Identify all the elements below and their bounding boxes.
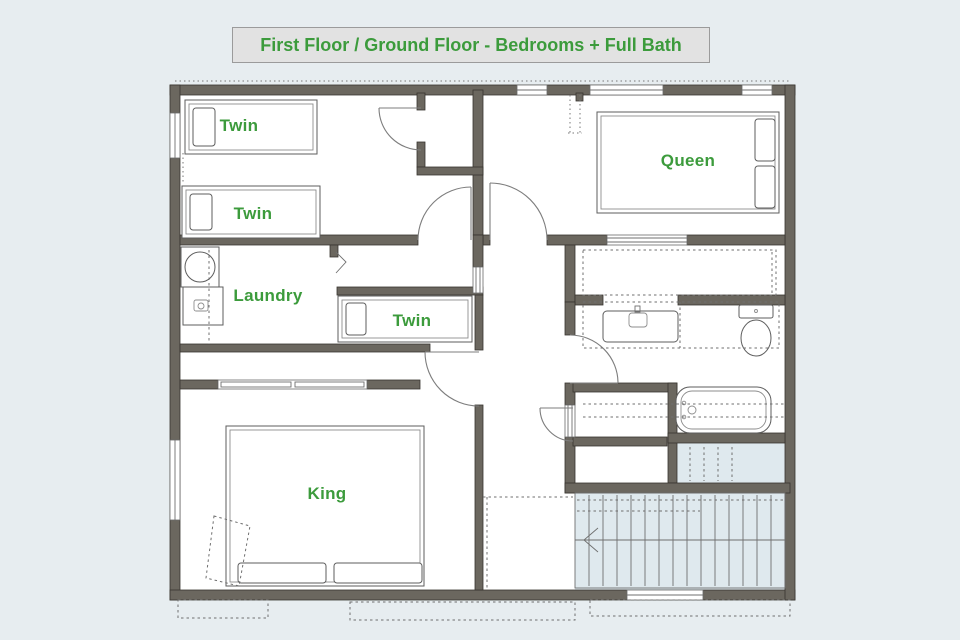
vanity-sink-icon <box>603 306 678 342</box>
window-queen-top <box>590 85 663 95</box>
opening-hall-wall <box>473 267 483 293</box>
label-laundry: Laundry <box>233 286 302 306</box>
floor-plan-canvas <box>0 0 960 640</box>
window-king-left <box>170 440 180 520</box>
opening-queen-wall <box>607 235 687 245</box>
closet-door-gap <box>565 405 575 437</box>
label-twin-c: Twin <box>393 311 432 331</box>
window-twin-left <box>170 113 180 158</box>
label-twin-a: Twin <box>220 116 259 136</box>
window-top-small <box>517 85 547 95</box>
laundry-cabinet-icon <box>183 287 223 325</box>
king-closet-sliding-doors <box>218 380 367 389</box>
label-queen: Queen <box>661 151 715 171</box>
window-bottom <box>627 590 703 600</box>
window-top-right <box>742 85 772 95</box>
washer-icon <box>181 247 219 287</box>
floor-plan-page: First Floor / Ground Floor - Bedrooms + … <box>0 0 960 640</box>
label-twin-b: Twin <box>234 204 273 224</box>
king-bed-icon <box>226 426 424 586</box>
label-king: King <box>308 484 347 504</box>
bathtub-icon <box>676 387 771 433</box>
